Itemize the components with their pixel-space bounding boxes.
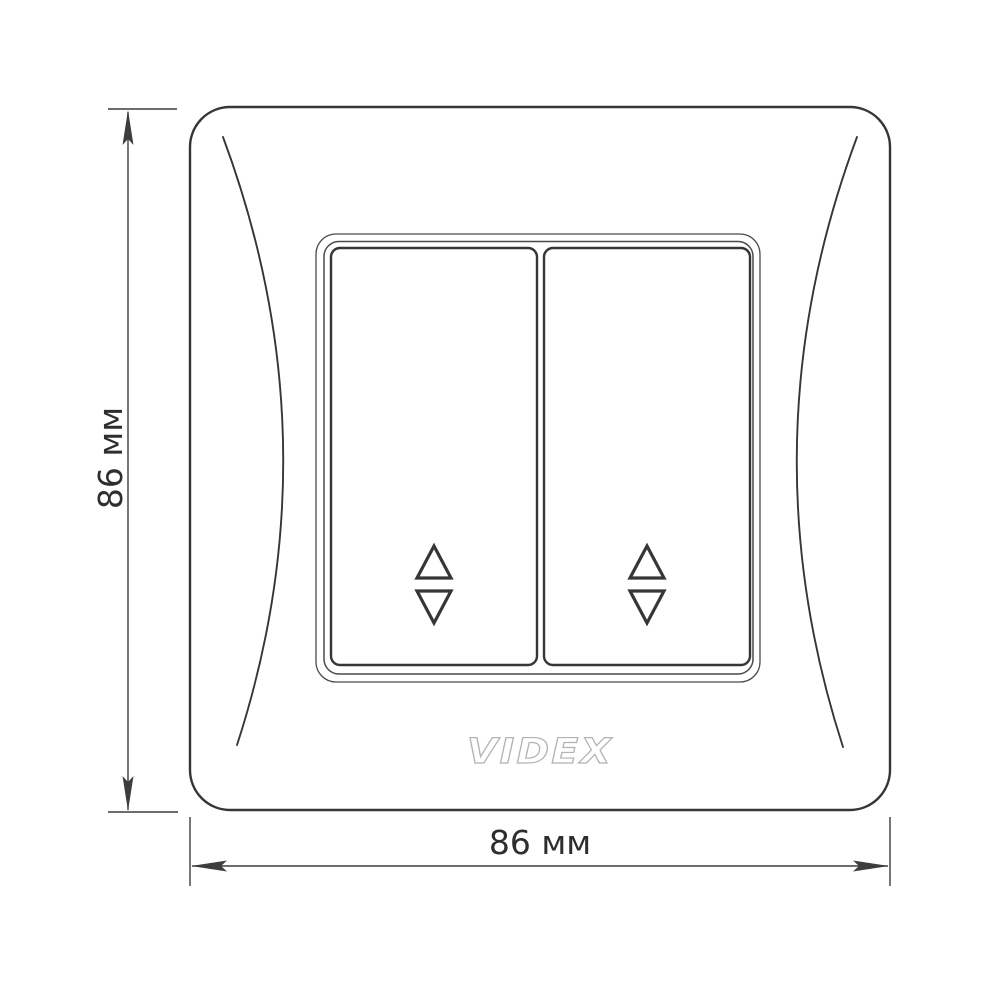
faceplate-right-accent-curve [797,137,857,747]
faceplate-left-accent-curve [223,137,283,745]
height-dimension-label: 86 мм [91,407,130,509]
product-dimension-diagram: VIDEX 86 мм [0,0,1000,1000]
switch-faceplate [190,107,890,810]
rocker-right [544,248,750,665]
width-dimension-label: 86 мм [489,823,591,862]
brand-logo: VIDEX [467,732,613,772]
height-dimension: 86 мм [91,109,178,812]
diagram-canvas: VIDEX 86 мм [0,0,1000,1000]
rocker-left [331,248,537,665]
width-dimension: 86 мм [190,817,890,886]
